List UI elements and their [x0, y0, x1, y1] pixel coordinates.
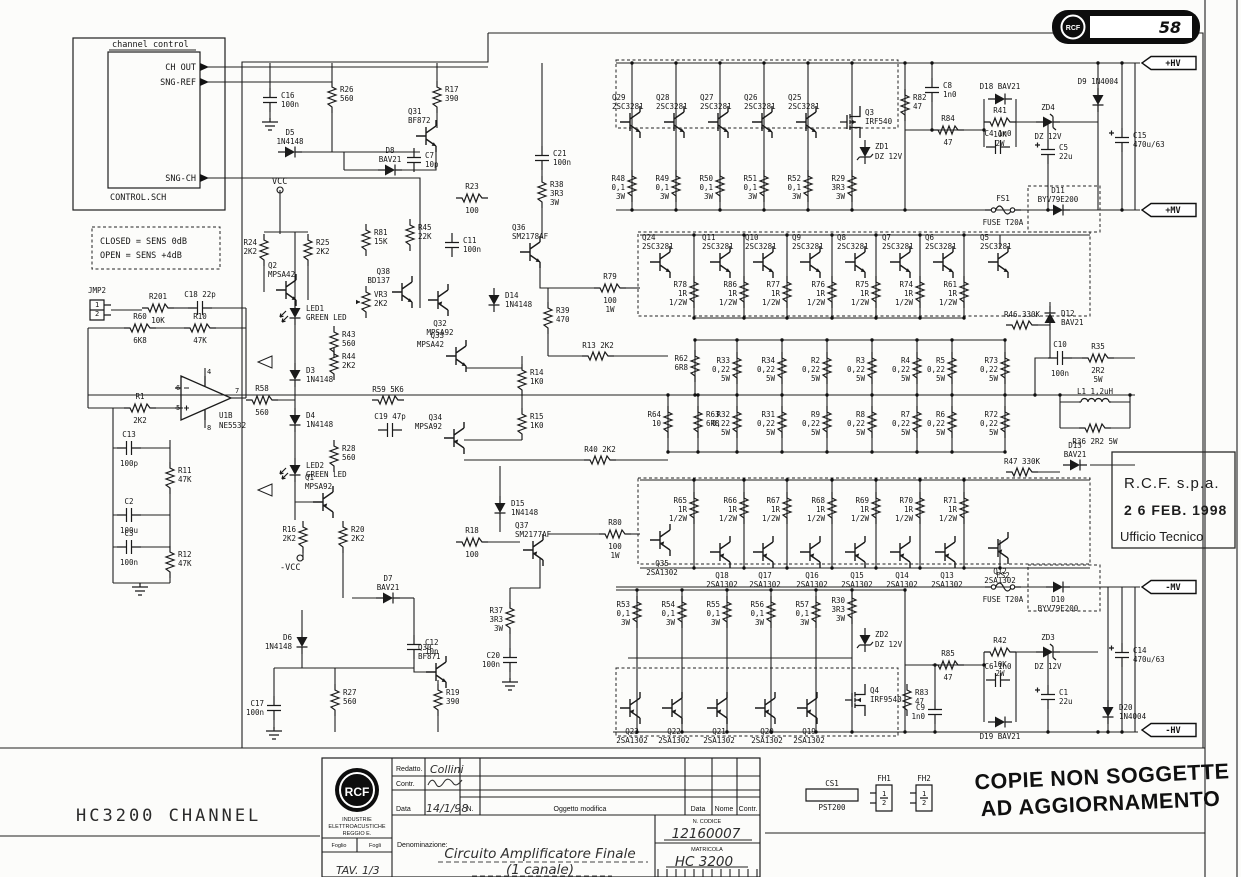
component-value: 2SA1302 [886, 580, 918, 589]
junction-dot [785, 566, 788, 569]
FS1-symbol-icon [985, 206, 1021, 214]
component-ref: FH1 [877, 774, 891, 783]
Q33-symbol-icon [446, 340, 466, 372]
R25-symbol-icon [304, 234, 312, 266]
D19-symbol-icon [988, 717, 1012, 728]
pin-sng-ref: SNG-REF [160, 78, 196, 88]
component-ref: D3 [306, 366, 315, 375]
junction-dot [742, 316, 745, 319]
component-value: 5W [766, 374, 776, 383]
component-R3: R30,225W [847, 352, 876, 384]
net-label: 2 [922, 799, 926, 807]
component-R78: R781R1/2W [669, 276, 698, 308]
component-ref: Q37 [515, 521, 529, 530]
wire [205, 178, 420, 308]
component-ref: R84 [941, 114, 955, 123]
component-ref: R34 [761, 356, 775, 365]
Q13-symbol-icon [935, 536, 955, 568]
component-R69: R691R1/2W [851, 492, 880, 524]
junction-dot [825, 393, 828, 396]
oggetto-label: Oggetto modifica [554, 806, 607, 813]
component-ref: Q14 [895, 571, 909, 580]
component-FH2: FH2 [910, 774, 932, 811]
junction-dot [903, 208, 906, 211]
component-ref: R83 [915, 688, 929, 697]
R28-symbol-icon [330, 440, 338, 472]
contr-label: Contr. [396, 781, 415, 788]
junction-dot [874, 233, 877, 236]
component-value: 100p [120, 459, 139, 468]
R67-symbol-icon [783, 492, 791, 524]
component-ref: R73 [984, 356, 998, 365]
component-value: GREEN LED [306, 313, 347, 322]
junction-dot [930, 61, 933, 64]
R38-symbol-icon [538, 176, 546, 208]
component-ref: C15 [1133, 131, 1147, 140]
R12-symbol-icon [166, 546, 174, 578]
component-ref: Q29 [612, 93, 626, 102]
junction-dot [780, 338, 783, 341]
component-value: 5W [989, 374, 999, 383]
component-ref: D4 [306, 411, 316, 420]
junction-dot [785, 233, 788, 236]
component-value: 1R [904, 289, 914, 298]
component-value: 100 [603, 296, 617, 305]
R54-symbol-icon [678, 596, 686, 628]
component-value: 1K0 [530, 421, 544, 430]
R23-symbol-icon [456, 194, 488, 202]
component-value: 100n [553, 158, 571, 167]
component-value: 100n [463, 245, 481, 254]
component-R39: R39470 [544, 302, 570, 334]
component-D6: D61N4148 [265, 630, 308, 654]
wire [694, 480, 964, 568]
component-value: 2K2 [282, 534, 296, 543]
C11-symbol-icon [445, 233, 459, 257]
component-Q8: Q82SC3281 [837, 233, 869, 278]
date-stamp: R.C.F. s.p.a. 2 6 FEB. 1998 Ufficio Tecn… [1112, 452, 1235, 548]
component-ref: D19 BAV21 [980, 732, 1021, 741]
fogli-label: Fogli [369, 843, 381, 849]
component-R58: R58560 [246, 384, 278, 417]
R3-symbol-icon [868, 352, 876, 384]
component-value: 1R [728, 289, 738, 298]
R6-symbol-icon [948, 406, 956, 438]
component-Q10: Q102SC3281 [745, 233, 777, 278]
junction-dot [950, 393, 953, 396]
component-ZD2: ZD2DZ 12V [857, 628, 903, 652]
R32-symbol-icon [733, 406, 741, 438]
component-value: 1R [678, 289, 688, 298]
component-ref: Q32 [433, 319, 447, 328]
Q35-symbol-icon [650, 524, 670, 556]
denominazione-value: Circuito Amplificatore Finale [444, 846, 635, 862]
component-R12: R1247K [166, 546, 192, 578]
n-label: N. [467, 806, 474, 813]
sense-note: CLOSED = SENS 0dB OPEN = SENS +4dB [100, 237, 187, 261]
component-ref: R61 [943, 280, 957, 289]
Q18-symbol-icon [710, 536, 730, 568]
component-value: NE5532 [219, 421, 246, 430]
component-value: 100 [608, 542, 622, 551]
component-ref: ZD4 [1041, 103, 1055, 112]
component-D3: D31N4148 [290, 363, 334, 387]
junction-dot [962, 478, 965, 481]
C1-symbol-icon [1035, 685, 1055, 709]
net-label: 1 [882, 790, 886, 798]
component-value: 1R [860, 289, 870, 298]
junction-dot [830, 478, 833, 481]
component-ref: R57 [795, 600, 809, 609]
sheet-number-badge: RCF 58 [1052, 10, 1200, 44]
component-ref: JMP2 [88, 286, 106, 295]
component-C5: C522u [1035, 140, 1073, 164]
component-R42: R4210K2W [984, 636, 1016, 678]
component-R62: R626R8 [674, 350, 699, 382]
junction-dot [962, 316, 965, 319]
component-value: 22u [1059, 697, 1073, 706]
component-value: BYV79E200 [1038, 195, 1079, 204]
C10-symbol-icon [1048, 351, 1072, 365]
component-value: 2SC3281 [788, 102, 820, 111]
control-block: channel control CH OUT SNG-REF SNG-CH CO… [110, 40, 196, 203]
net-label: VCC [272, 177, 287, 187]
wire [540, 268, 594, 288]
component-R5: R50,225W [927, 352, 956, 384]
C16-symbol-icon [263, 88, 277, 112]
R56-symbol-icon [767, 596, 775, 628]
component-Q32: Q32MPSA92 [426, 284, 453, 337]
component-R65: R651R1/2W [669, 492, 698, 524]
component-ref: R18 [465, 526, 479, 535]
junction-dot [918, 566, 921, 569]
D13-symbol-icon [1063, 460, 1087, 471]
redatto-label: Redatto. [396, 766, 423, 773]
component-value: 1N4148 [306, 375, 334, 384]
component-value: 2SC3281 [837, 242, 869, 251]
dashed-group-box [616, 668, 898, 736]
component-value: 2SA1302 [646, 568, 678, 577]
component-Q26: Q262SC3281 [744, 93, 776, 138]
component-R28: R28560 [330, 440, 356, 472]
component-ref: R79 [603, 272, 617, 281]
component-R4: R40,225W [892, 352, 921, 384]
component-value: 3W [621, 618, 631, 627]
matricola-label: MATRICOLA [691, 847, 723, 853]
component-R40: R40 2K2 [584, 445, 616, 464]
component-ref: D10 [1051, 595, 1065, 604]
note-line2: OPEN = SENS +4dB [100, 251, 182, 261]
component-ref: D13 [1068, 441, 1082, 450]
component-C9: C91n0 [911, 700, 942, 724]
junction-dot [718, 208, 721, 211]
component-R55: R550,13W [706, 596, 731, 628]
date-stamp-date: 2 6 FEB. 1998 [1124, 502, 1227, 518]
junction-dot [962, 233, 965, 236]
component-R9: R90,225W [802, 406, 831, 438]
junction-dot [830, 566, 833, 569]
component-value: 100n [1051, 369, 1069, 378]
component-ref: R64 [647, 410, 661, 419]
component-ref: C13 [122, 430, 136, 439]
component-value: 0,22 [847, 419, 865, 428]
component-ref: R8 [856, 410, 866, 419]
component-R37: R373R33W [489, 602, 514, 634]
component-ref: C4 1n0 [984, 129, 1012, 138]
component-value: 2K2 [133, 416, 147, 425]
component-value: 2K2 [316, 247, 330, 256]
component-value: 2SC3281 [745, 242, 777, 251]
C17-symbol-icon [267, 696, 281, 720]
component-value: BAV21 [377, 583, 400, 592]
junction-dot [1120, 730, 1123, 733]
component-R86: R861R1/2W [719, 276, 748, 308]
component-R32: R320,225W [712, 406, 741, 438]
dashed-group-box [92, 227, 220, 269]
generated-schematic: +HV+MV-MV-HVVCC-VCC48657121212C16100nR26… [88, 57, 1196, 813]
R19-symbol-icon [434, 684, 442, 716]
R47-symbol-icon [1006, 468, 1038, 476]
component-R15: R151K0 [518, 408, 544, 440]
R42-symbol-icon [984, 648, 1016, 656]
component-ref: FS1 [996, 194, 1010, 203]
component-value: 0,22 [757, 419, 775, 428]
redatto-value: Collini [430, 763, 464, 776]
contr-signature [428, 779, 462, 786]
component-C1: C122u [1035, 685, 1073, 709]
component-R30: R303R33W [831, 592, 856, 624]
component-ref: Q16 [805, 571, 819, 580]
component-ref: R54 [661, 600, 675, 609]
component-R38: R383R33W [538, 176, 564, 208]
component-ref: Q36 [512, 223, 526, 232]
component-value: 47 [943, 673, 952, 682]
denominazione-label: Denominazione: [397, 842, 448, 849]
component-value: 390 [446, 697, 460, 706]
D15-symbol-icon [495, 496, 506, 520]
component-value: 1/2W [939, 514, 958, 523]
pin-arrow-icon [200, 63, 209, 71]
component-ref: R4 [901, 356, 911, 365]
D20-symbol-icon [1103, 700, 1114, 724]
junction-dot [735, 450, 738, 453]
pin-sng-ch: SNG-CH [165, 174, 196, 184]
component-ref: R32 [716, 410, 730, 419]
component-value: 1n0 [911, 712, 925, 721]
C8-symbol-icon [925, 78, 939, 102]
component-value: 0,22 [927, 419, 945, 428]
component-value: 5W [856, 374, 866, 383]
component-value: 1/2W [807, 298, 826, 307]
component-R27: R27560 [331, 684, 357, 716]
component-ref: C19 47p [374, 412, 406, 421]
component-ref: R53 [616, 600, 630, 609]
R62-symbol-icon [691, 350, 699, 382]
component-ref: C10 [1053, 340, 1067, 349]
junction-dot [1128, 393, 1131, 396]
component-value: 5W [936, 374, 946, 383]
R79-symbol-icon [594, 284, 626, 292]
R29-symbol-icon [848, 170, 856, 202]
component-ref: Q11 [702, 233, 716, 242]
component-value: 5W [989, 428, 999, 437]
component-value: 100 [465, 550, 479, 559]
component-R57: R570,13W [795, 596, 820, 628]
junction-dot [918, 478, 921, 481]
component-value: 1R [948, 505, 958, 514]
component-ref: Q21 [712, 727, 726, 736]
component-ref: R51 [743, 174, 757, 183]
R35-symbol-icon [1082, 354, 1114, 362]
R40-symbol-icon [584, 456, 616, 464]
component-ref: C14 [1133, 646, 1147, 655]
component-value: 2SA1302 [751, 736, 783, 745]
R70-symbol-icon [916, 492, 924, 524]
component-D4: D41N4148 [290, 408, 334, 432]
component-ref: Q34 [428, 413, 442, 422]
component-Q35: Q352SA1302 [646, 524, 678, 577]
junction-dot [870, 338, 873, 341]
R30-symbol-icon [848, 592, 856, 624]
Q3-symbol-icon [840, 106, 860, 138]
component-value: 0,22 [892, 365, 910, 374]
component-ref: R7 [901, 410, 910, 419]
junction-dot [630, 61, 633, 64]
junction-dot [785, 478, 788, 481]
component-ref: Q24 [642, 233, 656, 242]
component-value: 1/2W [719, 514, 738, 523]
component-value: 3W [550, 198, 560, 207]
component-value: 10p [425, 160, 439, 169]
component-value: 3W [836, 192, 846, 201]
component-R19: R19390 [434, 684, 460, 716]
component-R48: R480,13W [611, 170, 636, 202]
Q4-symbol-icon [845, 684, 865, 716]
D8-symbol-icon [378, 165, 402, 176]
badge-brand: RCF [1066, 25, 1081, 32]
component-ref: R19 [446, 688, 460, 697]
R46-symbol-icon [1006, 321, 1038, 329]
component-ref: R72 [984, 410, 998, 419]
rail-label: -MV [1165, 583, 1180, 593]
component-R35: R352R25W [1082, 342, 1114, 384]
junction-dot [635, 588, 638, 591]
component-value: 5W [901, 374, 911, 383]
component-R17: R17390 [433, 81, 459, 113]
junction-dot [680, 588, 683, 591]
component-R16: R162K2 [282, 521, 307, 553]
junction-dot [850, 730, 853, 733]
R9-symbol-icon [823, 406, 831, 438]
gnd-symbol-icon [132, 583, 148, 595]
CS1-symbol-icon [806, 789, 858, 801]
LED1-symbol-icon [280, 301, 301, 325]
component-value: 2SA1302 [616, 736, 648, 745]
Q20-symbol-icon [755, 692, 775, 724]
component-value: DZ 12V [875, 640, 903, 649]
wire [1035, 358, 1048, 395]
L1-symbol-icon [1079, 399, 1111, 403]
junction-dot [918, 316, 921, 319]
component-value: BAV21 [1064, 450, 1087, 459]
component-value: 0,22 [980, 419, 998, 428]
component-value: 3W [494, 624, 504, 633]
component-Q27: Q272SC3281 [700, 93, 732, 138]
component-ref: Q2 [268, 261, 277, 270]
rail-label: +MV [1165, 206, 1180, 216]
component-value: 2SC3281 [700, 102, 732, 111]
D4-symbol-icon [290, 408, 301, 432]
component-R1: R12K2 [124, 392, 156, 425]
R55-symbol-icon [723, 596, 731, 628]
component-value: 1/2W [895, 298, 914, 307]
JMP2-symbol-icon [90, 300, 111, 320]
component-ref: R59 5K6 [372, 385, 404, 394]
component-ref: C16 [281, 91, 295, 100]
net-label: -VCC [280, 563, 300, 573]
component-ref: R77 [766, 280, 780, 289]
component-ref: CS1 [825, 779, 839, 788]
junction-dot [950, 450, 953, 453]
component-ZD4: ZD4DZ 12V [1034, 103, 1062, 141]
component-value: BYV79E200 [1038, 604, 1079, 613]
component-value: PST200 [818, 803, 846, 812]
component-ref: R86 [723, 280, 737, 289]
component-R77: R771R1/2W [762, 276, 791, 308]
pin-arrow-icon [200, 174, 209, 182]
component-ref: R81 [374, 228, 388, 237]
rail-label: -HV [1165, 726, 1180, 736]
component-value: 1/2W [669, 514, 688, 523]
net-label: 7 [235, 387, 239, 395]
gnd-symbol-icon [502, 678, 518, 690]
component-value: 1R [860, 505, 870, 514]
component-value: MPSA42 [417, 340, 444, 349]
component-ref: R2 [811, 356, 820, 365]
component-R23: R23100 [456, 182, 488, 215]
R37-symbol-icon [506, 602, 514, 634]
junction-dot [693, 393, 696, 396]
component-value: MPSA92 [305, 482, 332, 491]
component-value: 2K2 [351, 534, 365, 543]
R80-symbol-icon [599, 530, 631, 538]
component-value: 0,1 [787, 183, 801, 192]
C15-symbol-icon [1109, 128, 1129, 152]
data-label: Data [396, 806, 411, 813]
component-value: 5W [811, 428, 821, 437]
R77-symbol-icon [783, 276, 791, 308]
component-ref: R75 [855, 280, 869, 289]
junction-dot [1046, 730, 1049, 733]
R84-symbol-icon [932, 126, 964, 134]
junction-dot [762, 208, 765, 211]
R24-symbol-icon [260, 234, 268, 266]
FH2-symbol-icon [910, 785, 932, 811]
component-value: 47 [913, 102, 922, 111]
rail-label: +HV [1165, 59, 1180, 69]
component-C21: C21100n [535, 146, 571, 170]
component-R52: R520,13W [787, 170, 812, 202]
Q19-symbol-icon [797, 692, 817, 724]
junction-dot [780, 393, 783, 396]
component-value: 1K0 [530, 377, 544, 386]
component-value: 0,1 [706, 609, 720, 618]
component-R66: R661R1/2W [719, 492, 748, 524]
brand-line3: REGGIO E. [343, 831, 372, 837]
matricola-value: HC 3200 [675, 854, 733, 870]
component-ref: Q38 [376, 267, 390, 276]
component-ref: R55 [706, 600, 720, 609]
